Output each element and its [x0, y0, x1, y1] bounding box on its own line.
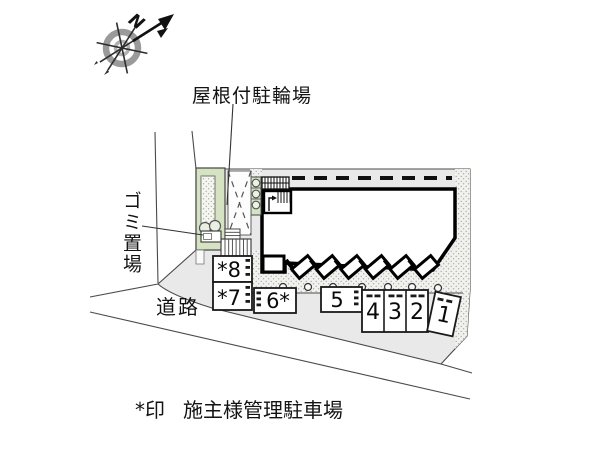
- parking-space-7-label: *7: [212, 286, 246, 310]
- north-arrow-head: [158, 14, 174, 30]
- road-edge-upper: [441, 364, 472, 373]
- parking-space-5-label: 5: [321, 288, 353, 312]
- legend-mark: *印: [135, 398, 165, 422]
- parking-space-1-label: 1: [429, 301, 460, 331]
- shrub-icon: [252, 179, 260, 187]
- north-arrow-head-small: [157, 28, 168, 38]
- garbage-box: [201, 231, 221, 242]
- canopy-grate: [262, 177, 289, 189]
- site-plan-drawing: [0, 0, 600, 450]
- shrub-icon: [252, 201, 260, 209]
- shrub-icon: [210, 221, 221, 232]
- road-label: 道路: [156, 291, 200, 320]
- parking-space-4-label: 4: [362, 300, 384, 325]
- building-step-notch: [263, 256, 284, 272]
- bicycle-parking-label: 屋根付駐輪場: [192, 81, 312, 108]
- entrance-stairs: [264, 191, 291, 213]
- garbage-area-label: ゴミ置場: [118, 191, 145, 275]
- west-boundary-line: [155, 132, 158, 283]
- legend-text: 施主様管理駐車場: [183, 398, 343, 422]
- road-edge-west: [90, 284, 158, 297]
- shrub-icon: [252, 190, 260, 198]
- parking-space-8-label: *8: [212, 258, 246, 282]
- turning-area-x: [228, 171, 251, 235]
- site-plan: N 屋根付駐輪場 ゴミ置場 道路 *印施主様管理駐車場 *8 *7 6* 5 4…: [0, 0, 600, 450]
- parking-space-3-label: 3: [384, 300, 406, 325]
- garbage-label-leader: [142, 226, 203, 235]
- approach-boundary-line: [192, 131, 196, 169]
- legend: *印施主様管理駐車場: [135, 394, 343, 423]
- parking-space-6-label: 6*: [260, 289, 296, 313]
- walkway-strip: [196, 250, 204, 264]
- parking-space-2-label: 2: [406, 300, 428, 325]
- west-planter: [251, 177, 261, 215]
